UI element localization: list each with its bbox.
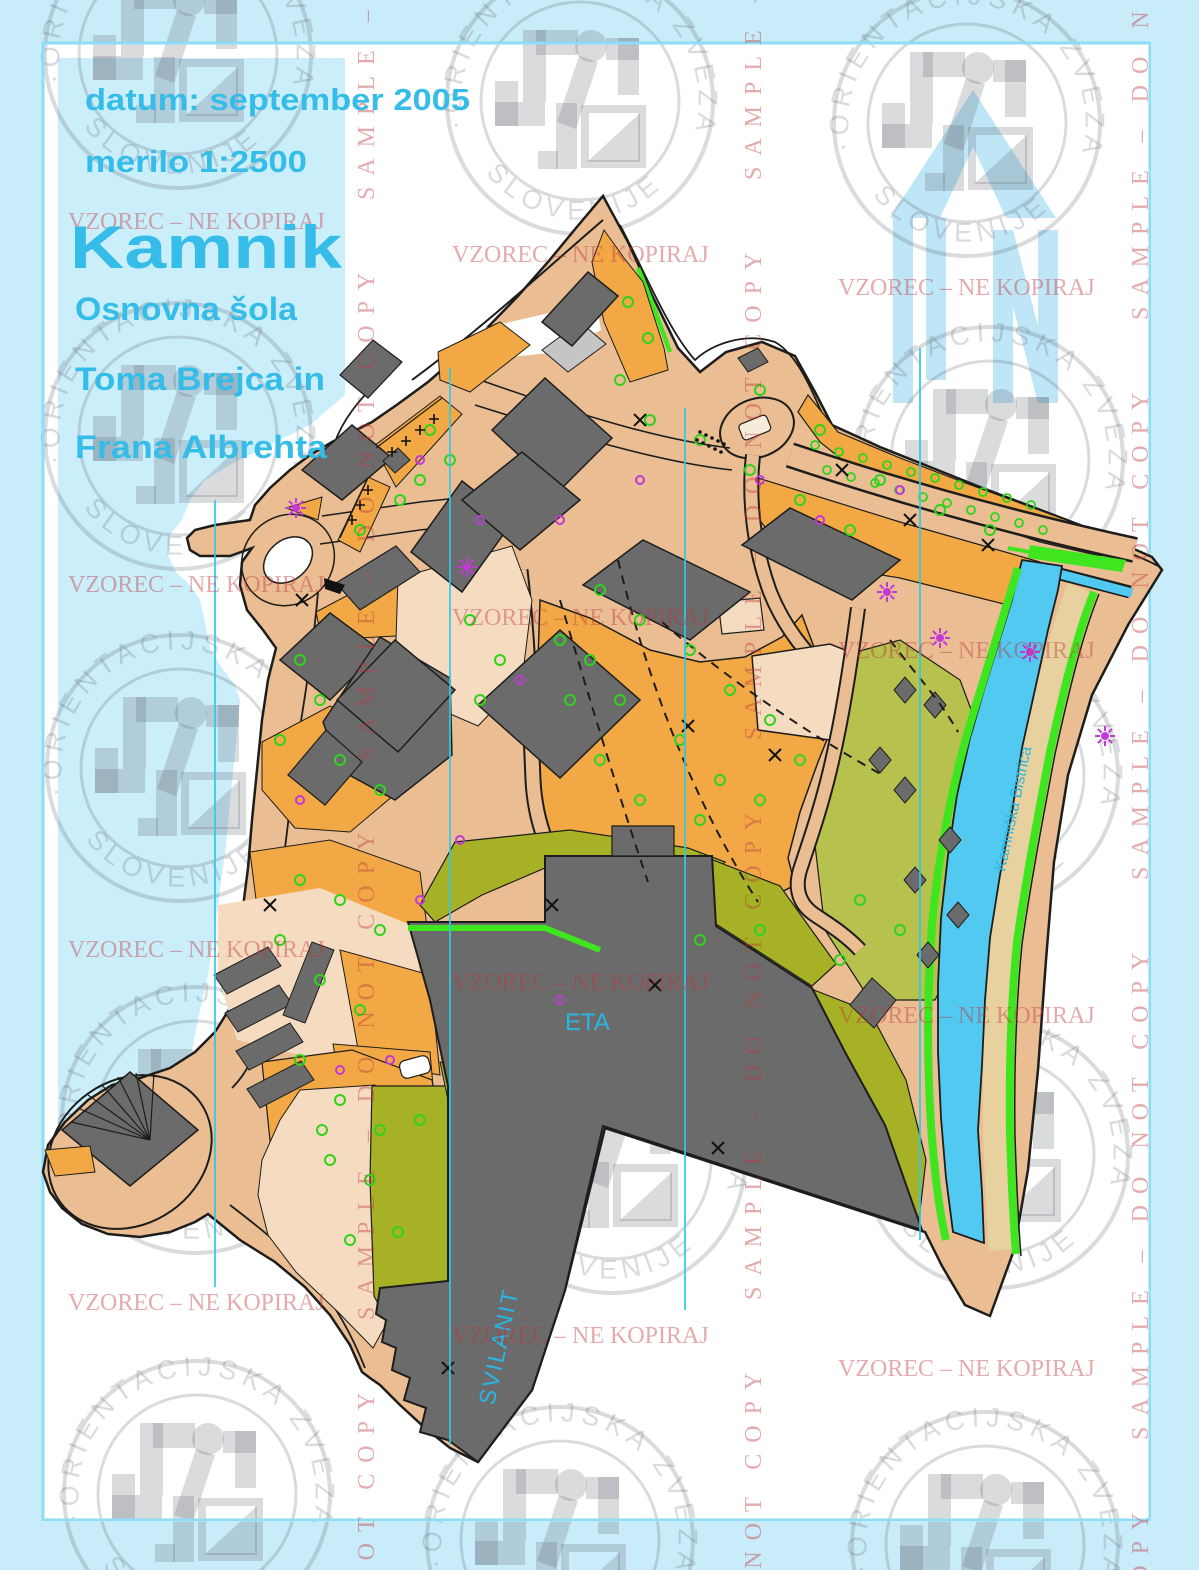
svg-text:merilo 1:2500: merilo 1:2500 [85,144,307,179]
svg-text:Kamnik: Kamnik [70,214,343,281]
svg-text:Toma Brejca in: Toma Brejca in [75,361,325,397]
svg-text:datum: september 2005: datum: september 2005 [85,82,470,117]
svg-text:VZOREC – NE KOPIRAJ: VZOREC – NE KOPIRAJ [838,638,1095,664]
svg-text:SAMPLE – DO NOT COPY: SAMPLE – DO NOT COPY [1128,0,1154,320]
svg-text:Frana Albrehta: Frana Albrehta [75,429,327,465]
svg-text:SAMPLE – DO NOT COPY: SAMPLE – DO NOT COPY [741,242,767,740]
svg-text:ETA: ETA [565,1009,610,1036]
svg-text:VZOREC – NE KOPIRAJ: VZOREC – NE KOPIRAJ [452,242,709,268]
svg-text:SAMPLE – DO NOT COPY: SAMPLE – DO NOT COPY [354,1382,380,1570]
svg-text:VZOREC – NE KOPIRAJ: VZOREC – NE KOPIRAJ [452,605,709,631]
svg-text:VZOREC – NE KOPIRAJ: VZOREC – NE KOPIRAJ [68,572,325,598]
svg-text:VZOREC – NE KOPIRAJ: VZOREC – NE KOPIRAJ [452,970,709,996]
svg-text:VZOREC – NE KOPIRAJ: VZOREC – NE KOPIRAJ [838,1003,1095,1029]
svg-text:VZOREC – NE KOPIRAJ: VZOREC – NE KOPIRAJ [838,275,1095,301]
svg-text:VZOREC – NE KOPIRAJ: VZOREC – NE KOPIRAJ [838,1356,1095,1382]
svg-text:VZOREC – NE KOPIRAJ: VZOREC – NE KOPIRAJ [68,1290,325,1316]
svg-text:SAMPLE – DO NOT COPY: SAMPLE – DO NOT COPY [741,0,767,180]
svg-text:SAMPLE – DO NOT COPY: SAMPLE – DO NOT COPY [741,802,767,1300]
svg-text:SAMPLE – DO NOT COPY: SAMPLE – DO NOT COPY [354,822,380,1320]
svg-text:SAMPLE – DO NOT COPY: SAMPLE – DO NOT COPY [741,1362,767,1570]
svg-text:SAMPLE – DO NOT COPY: SAMPLE – DO NOT COPY [1128,942,1154,1440]
svg-text:VZOREC – NE KOPIRAJ: VZOREC – NE KOPIRAJ [68,937,325,963]
svg-text:SAMPLE – DO NOT COPY: SAMPLE – DO NOT COPY [354,262,380,760]
svg-text:SAMPLE – DO NOT COPY: SAMPLE – DO NOT COPY [1128,382,1154,880]
svg-text:VZOREC – NE KOPIRAJ: VZOREC – NE KOPIRAJ [452,1323,709,1349]
svg-text:SAMPLE – DO NOT COPY: SAMPLE – DO NOT COPY [1128,1502,1154,1570]
svg-text:Osnovna šola: Osnovna šola [75,291,297,327]
